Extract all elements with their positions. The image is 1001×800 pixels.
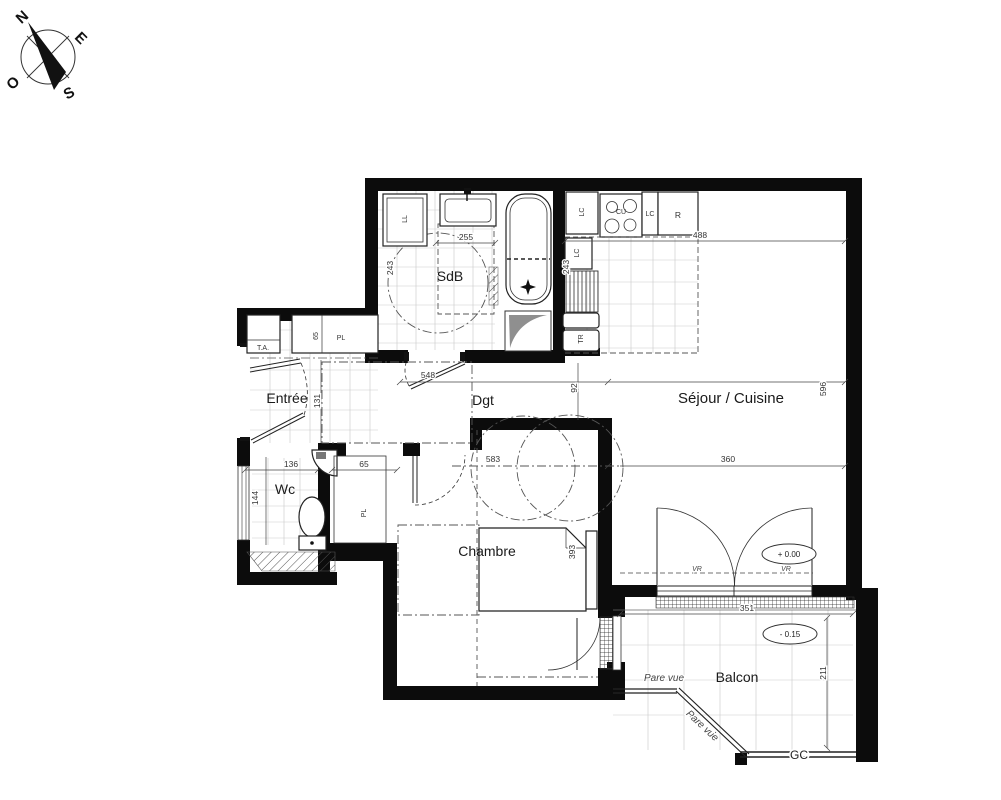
sdb-door-jamb: [460, 352, 465, 361]
sejour-room-label: Séjour / Cuisine: [678, 390, 784, 407]
wall-right-sejour: [846, 178, 862, 600]
entree-closet-width-dim: 65: [313, 332, 320, 340]
kitchen-width-dim: 488: [693, 230, 707, 240]
wall-sejour-balcony-left: [607, 585, 657, 597]
wall-wc-bottom: [237, 572, 337, 585]
kitchen-counter-top-row: LC CU LC R: [565, 192, 698, 237]
pare-vue-label: Pare vue: [644, 673, 684, 684]
electrical-panel-label: T.A.: [257, 345, 269, 352]
cooktop: CU: [600, 194, 642, 237]
entree-depth-dim: 131: [312, 394, 322, 408]
sejour-level-value: + 0.00: [778, 550, 801, 559]
floor-plan-canvas: N E O S: [0, 0, 1001, 800]
kitchen-lc-low-label: LC: [574, 249, 581, 258]
balcon-level-value: - 0.15: [780, 630, 801, 639]
entree-clearance-zone: [322, 362, 472, 443]
chambre-balcony-threshold-hatch: [600, 617, 613, 669]
dgt-room-label: Dgt: [472, 392, 494, 408]
washing-machine-label: LL: [402, 215, 409, 223]
dgt-turning-circle: [471, 416, 575, 520]
sdb-room-label: SdB: [437, 268, 463, 284]
entree-window-frame: [238, 466, 249, 540]
wc-room-label: Wc: [275, 481, 295, 497]
shutter-right-label: VR: [781, 566, 791, 573]
wall-entree-left-lower: [237, 438, 250, 466]
wall-chambre-bottom: [383, 686, 613, 700]
dgt-depth-dim: 92: [569, 383, 579, 393]
wall-guardrail-post: [735, 753, 747, 765]
guardrail-label: GC: [790, 748, 808, 762]
basin-tap-icon: [464, 188, 471, 194]
fridge-label: R: [675, 210, 681, 220]
compass-west-label: O: [3, 73, 24, 94]
sejour-width-dim: 360: [721, 454, 735, 464]
dgt-zone: Dgt 548 92: [397, 363, 848, 521]
wall-balcony-right: [856, 588, 878, 762]
chambre-clearance-zone: [398, 525, 479, 615]
washing-machine: LL: [383, 194, 427, 246]
sdb-door-jamb: [404, 352, 409, 361]
sejour-depth-dim: 596: [818, 382, 828, 396]
balcony-threshold-hatch: [656, 597, 854, 608]
sink-drainer: [566, 271, 598, 312]
electrical-panel: T.A.: [247, 315, 280, 353]
wall-sdb-bottom-right: [465, 350, 565, 363]
pare-vue-diagonal-label: Pare vue: [684, 708, 721, 744]
wc-closet-width-dim: 65: [359, 459, 369, 469]
wall-top: [365, 178, 862, 191]
sejour-level-marker: + 0.00: [762, 544, 816, 564]
chambre-balcony-door: [548, 616, 621, 670]
compass-south-label: S: [61, 84, 78, 104]
kitchen-depth-dim: 243: [561, 260, 571, 274]
bed-headboard: [586, 531, 597, 609]
chambre-door: [413, 455, 465, 505]
wc-duct-hatch: [247, 552, 335, 571]
corner-basin-tap-icon: [316, 452, 326, 459]
entrance-door-jamb-bottom: [240, 437, 250, 441]
chambre-room-label: Chambre: [458, 543, 516, 559]
wc-room: 136 Wc 144: [242, 450, 337, 571]
balcon-level-marker: - 0.15: [763, 624, 817, 644]
bathtub: [506, 194, 551, 304]
wc-closet-label: PL: [361, 509, 368, 518]
sdb-width-dim: 255: [459, 232, 473, 242]
wc-width-dim: 136: [284, 459, 298, 469]
toilet-flush-button: [310, 541, 314, 545]
kitchen-counter-left-column: LC TR: [563, 238, 599, 351]
wc-depth-dim: 144: [250, 491, 260, 505]
balcon-width-dim: 351: [740, 603, 754, 613]
wall-sejour-balcony-right: [812, 585, 860, 597]
chambre-room: Chambre 393: [398, 430, 621, 686]
tr-label: TR: [578, 334, 585, 343]
entree-room-label: Entrée: [266, 390, 307, 406]
wall-chambre-door-stub: [403, 443, 420, 456]
toilet: [299, 497, 326, 550]
chambre-depth-dim: 393: [567, 545, 577, 559]
balcon-depth-dim: 211: [818, 666, 828, 680]
kitchen-lc-mid-label: LC: [646, 211, 655, 218]
cooktop-label: CU: [616, 209, 626, 216]
wall-chambre-left: [383, 555, 397, 700]
chambre-width-dim: 583: [486, 454, 500, 464]
wall-chambre-top: [470, 418, 612, 430]
duct-box: [505, 311, 551, 351]
privacy-screen-diagonal: Pare vue: [676, 688, 749, 757]
compass-east-label: E: [71, 29, 90, 48]
wc-closet: 65 PL: [329, 456, 400, 543]
washbasin: [440, 188, 496, 226]
kitchen-lc-top-label: LC: [579, 208, 586, 217]
floor-plan-page: N E O S: [0, 0, 1001, 800]
sdb-depth-dim: 243: [385, 261, 395, 275]
balcon-zone: 351 - 0.15 Balcon 211 Pare vue Pare vue …: [613, 603, 856, 762]
compass-rose: N E O S: [3, 7, 90, 103]
entree-closet: 65 PL: [292, 315, 378, 353]
bed: [479, 528, 597, 611]
entree-closet-label: PL: [337, 335, 346, 342]
kitchen-zone: LC CU LC R LC TR 488 2: [561, 192, 848, 353]
shower-screen-hatch: [489, 267, 498, 305]
dgt-width-dim: 548: [421, 370, 435, 380]
chambre-balcony-door-frame: [613, 616, 621, 670]
shutter-left-label: VR: [692, 566, 702, 573]
entree-room: T.A. 65 PL Entrée 131: [247, 315, 472, 443]
balcon-room-label: Balcon: [716, 669, 759, 685]
guardrail: GC: [740, 748, 856, 762]
